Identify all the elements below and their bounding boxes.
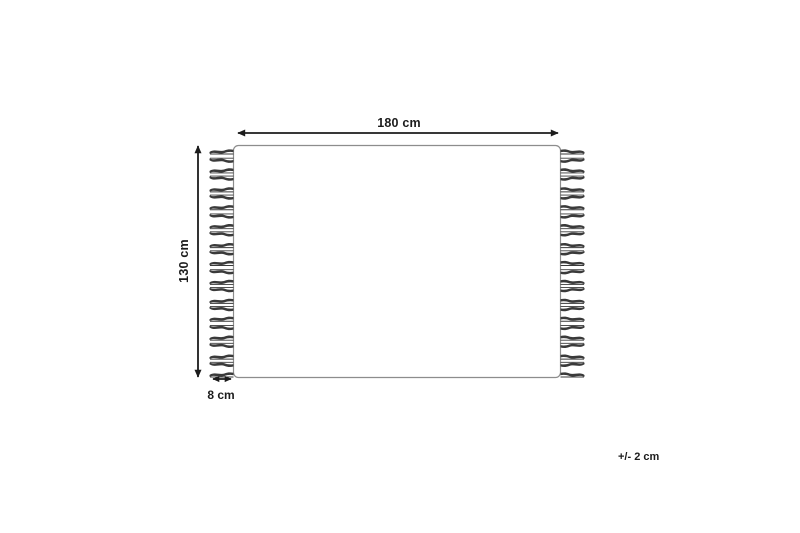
fringe-tassel xyxy=(210,224,234,229)
fringe-tassel xyxy=(210,232,234,237)
fringe-tassel xyxy=(561,288,585,293)
fringe-tassel xyxy=(561,187,585,192)
fringe-tassel xyxy=(561,343,585,348)
fringe-dimension-label: 8 cm xyxy=(207,388,234,402)
fringe-tassel xyxy=(210,214,234,219)
fringe-tassel xyxy=(210,307,234,312)
fringe-tassel xyxy=(561,354,585,359)
fringe-tassel xyxy=(210,288,234,293)
diagram-canvas: 180 cm 130 cm 8 cm +/- 2 cm xyxy=(0,0,800,533)
fringe-tassel xyxy=(561,307,585,312)
fringe-tassel xyxy=(210,317,234,322)
fringe-tassel xyxy=(210,251,234,256)
dimension-diagram: 180 cm 130 cm 8 cm +/- 2 cm xyxy=(0,0,800,533)
width-dimension-label: 180 cm xyxy=(377,116,421,130)
width-dimension: 180 cm xyxy=(238,116,558,133)
fringe-tassel xyxy=(561,362,585,367)
fringe-tassel xyxy=(210,168,234,173)
rug-outline xyxy=(234,146,561,378)
fringe-tassel xyxy=(210,149,234,154)
fringe-tassel xyxy=(210,372,234,377)
fringe-tassel xyxy=(561,224,585,229)
fringe-tassel xyxy=(210,336,234,341)
tolerance-label: +/- 2 cm xyxy=(618,451,659,463)
fringe-tassel xyxy=(561,261,585,266)
fringe-tassel xyxy=(561,214,585,219)
fringe-tassel xyxy=(561,251,585,256)
rug-fringe-left xyxy=(210,149,234,377)
fringe-tassel xyxy=(561,372,585,377)
fringe-tassel xyxy=(561,325,585,330)
fringe-tassel xyxy=(561,317,585,322)
fringe-tassel xyxy=(561,205,585,210)
fringe-tassel xyxy=(561,280,585,285)
fringe-tassel xyxy=(210,261,234,266)
fringe-tassel xyxy=(210,299,234,304)
fringe-tassel xyxy=(561,195,585,200)
fringe-tassel xyxy=(561,299,585,304)
fringe-tassel xyxy=(210,354,234,359)
fringe-tassel xyxy=(210,362,234,367)
fringe-tassel xyxy=(210,270,234,275)
fringe-tassel xyxy=(210,280,234,285)
height-dimension-label: 130 cm xyxy=(177,239,191,283)
fringe-tassel xyxy=(210,243,234,248)
fringe-tassel xyxy=(210,205,234,210)
fringe-tassel xyxy=(210,187,234,192)
fringe-tassel xyxy=(561,336,585,341)
fringe-tassel xyxy=(561,149,585,154)
fringe-tassel xyxy=(561,270,585,275)
fringe-tassel xyxy=(210,158,234,163)
fringe-tassel xyxy=(561,232,585,237)
fringe-tassel xyxy=(561,168,585,173)
rug-fringe-right xyxy=(561,149,585,377)
fringe-tassel xyxy=(210,343,234,348)
fringe-tassel xyxy=(561,158,585,163)
fringe-tassel xyxy=(561,243,585,248)
fringe-tassel xyxy=(210,325,234,330)
fringe-tassel xyxy=(210,195,234,200)
height-dimension: 130 cm xyxy=(177,146,198,377)
fringe-dimension: 8 cm xyxy=(207,379,234,402)
fringe-tassel xyxy=(561,176,585,181)
fringe-tassel xyxy=(210,176,234,181)
